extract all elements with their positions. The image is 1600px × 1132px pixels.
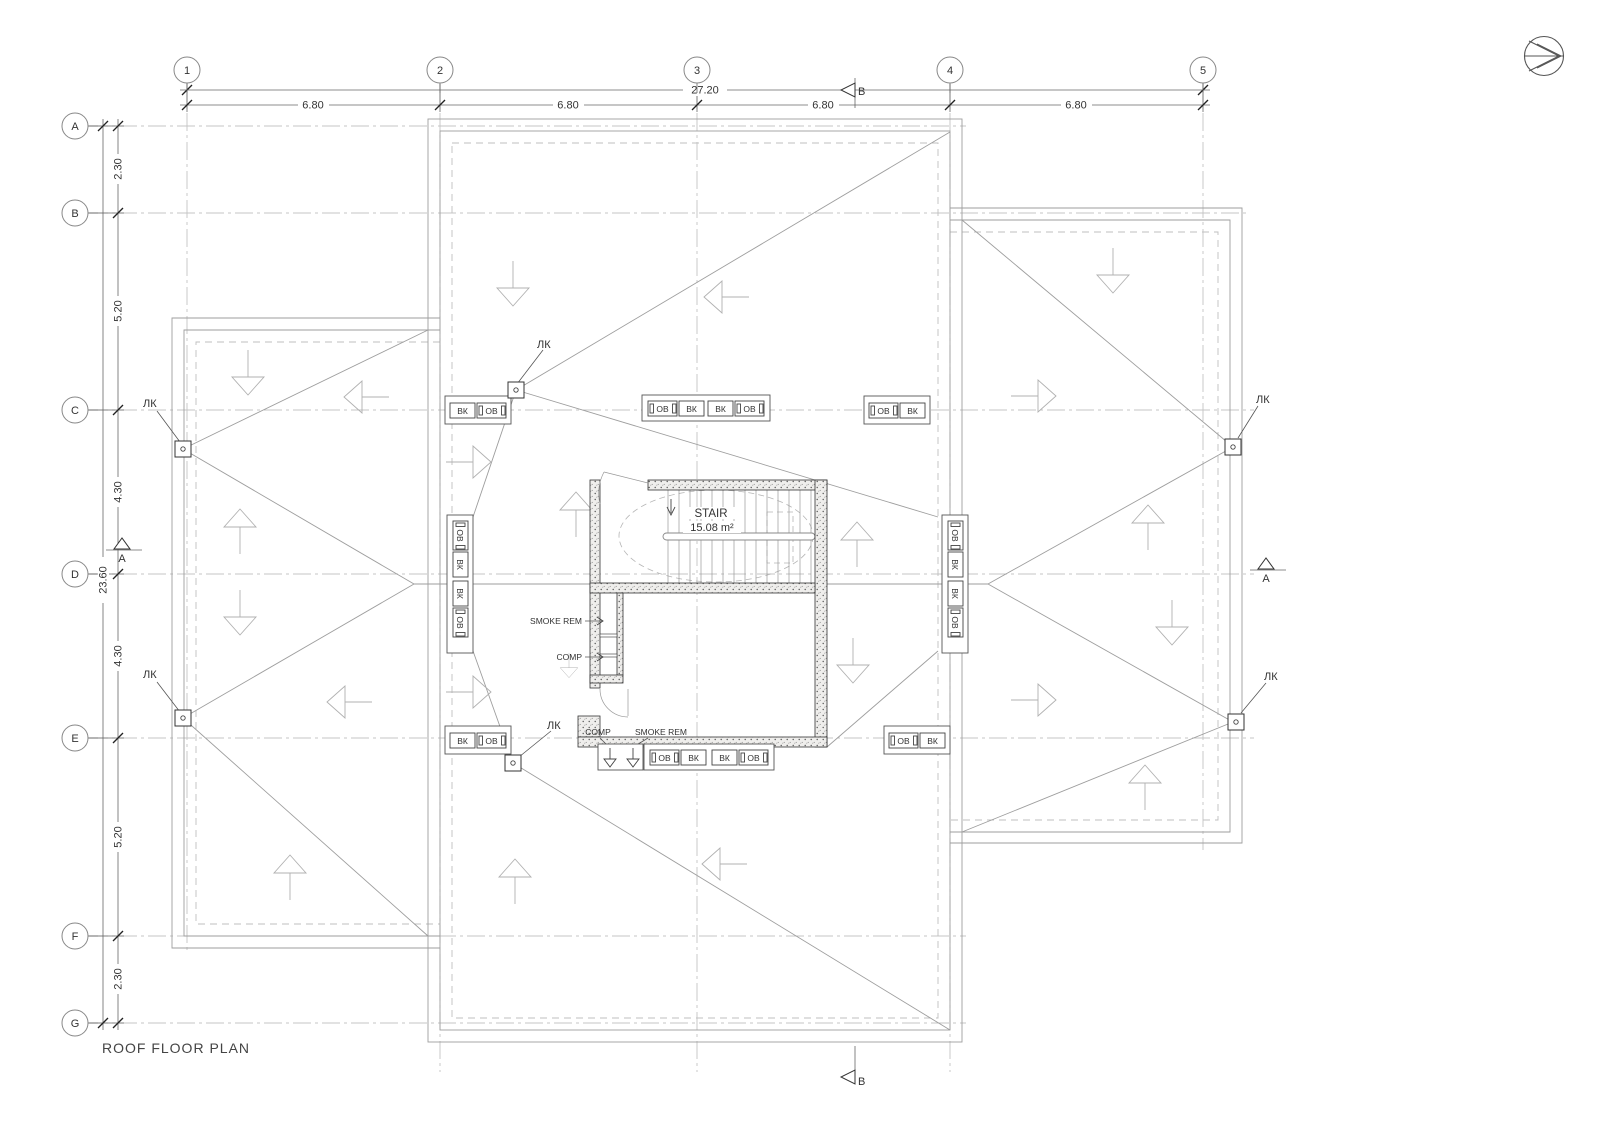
duct-outlet-box	[598, 744, 643, 770]
slope-arrow-right-icon	[446, 676, 491, 708]
vent-vk-label: ВК	[907, 406, 918, 416]
lk-leader	[157, 411, 180, 442]
grid-bubble-1: 1	[174, 57, 200, 93]
dim-segment-left: 4.30	[113, 645, 125, 666]
slope-arrow-up-icon	[560, 492, 592, 537]
grid-lines-rows	[90, 126, 1254, 1023]
slope-arrow-right-icon	[446, 446, 491, 478]
dim-segment-top: 6.80	[1065, 100, 1086, 112]
section-label: B	[858, 86, 865, 98]
lk-leader	[157, 682, 180, 712]
section-marker-a-right: A	[1250, 558, 1286, 585]
dim-segment-top: 6.80	[812, 100, 833, 112]
grid-bubble-label: F	[72, 931, 79, 943]
smoke-rem-label-bottom: SMOKE REM	[635, 727, 687, 737]
dim-total-top: 27.20	[691, 85, 719, 97]
stair-label: STAIR	[694, 508, 727, 520]
dimensions-left: 23.60 2.30 5.20 4.30 4.30 5.20 2.30	[86, 119, 125, 1030]
grid-bubble-label: E	[71, 733, 78, 745]
floor-plan-drawing: STAIR 15.08 m² SMOKE REM COMP COMP SMOKE…	[0, 0, 1600, 1132]
vent-vk-label: ВК	[688, 753, 699, 763]
slope-arrow-left-icon	[327, 686, 372, 718]
dim-segment-left-group: 4.30	[112, 641, 125, 671]
section-triangle-icon	[841, 1070, 855, 1084]
slope-arrow-right-icon	[1011, 684, 1056, 716]
lk-label: ЛК	[143, 398, 157, 410]
slope-arrow-down-icon	[232, 350, 264, 395]
dim-segment-left: 5.20	[113, 300, 125, 321]
dim-total-left: 23.60	[98, 566, 110, 594]
roof-floor-plan-sheet: STAIR 15.08 m² SMOKE REM COMP COMP SMOKE…	[0, 0, 1600, 1132]
left-wing-wall-line	[184, 330, 440, 936]
slope-arrow-up-icon	[841, 522, 873, 567]
section-triangle-icon	[1258, 558, 1274, 569]
door-leaf-top	[604, 472, 648, 483]
section-triangle-icon	[114, 538, 130, 549]
dim-segment-left: 4.30	[113, 481, 125, 502]
vent-vk-label: ВК	[719, 753, 730, 763]
slope-arrow-up-icon	[499, 859, 531, 904]
stair-wall-right	[815, 480, 827, 747]
dim-segment-top: 6.80	[302, 100, 323, 112]
vent-ov-label: ОВ	[950, 529, 960, 542]
lk-point	[175, 441, 191, 457]
stair-wall-mid	[590, 583, 815, 593]
grid-bubble-label: D	[71, 569, 79, 581]
grid-bubble-b: B	[62, 200, 98, 226]
dim-segment-left-group: 5.20	[112, 296, 125, 326]
slope-arrow-up-icon	[1129, 765, 1161, 810]
dim-segment-left-group: 5.20	[112, 822, 125, 852]
section-label: B	[858, 1076, 865, 1088]
vent-vk-label: ВК	[457, 406, 468, 416]
dimensions-top: 27.20 6.80 6.80 6.80 6.80	[180, 83, 1210, 112]
vent-ov-label: ОВ	[950, 616, 960, 629]
door-swing-arc-bottom	[600, 689, 628, 717]
grid-bubble-e: E	[62, 725, 98, 751]
dim-segment-left: 5.20	[113, 826, 125, 847]
dim-segment-left: 2.30	[113, 968, 125, 989]
dim-segment-left-group: 2.30	[112, 964, 125, 994]
slope-arrow-up-icon	[1132, 505, 1164, 550]
lk-point	[508, 382, 524, 398]
central-roof-hidden-line	[452, 143, 938, 1018]
grid-bubble-4: 4	[937, 57, 963, 93]
slope-arrow-left-icon	[704, 281, 749, 313]
vent-vk-label: ВК	[455, 559, 465, 570]
stair-wall-top	[648, 480, 827, 490]
vent-ov-label: ОВ	[485, 406, 498, 416]
grid-bubble-label: 5	[1200, 65, 1206, 77]
slope-arrow-right-icon	[1011, 380, 1056, 412]
grid-bubble-2: 2	[427, 57, 453, 93]
roof-hip-valley-lines	[183, 132, 1233, 1030]
grid-bubble-5: 5	[1190, 57, 1216, 93]
right-wing-outer-edge	[950, 208, 1242, 843]
vent-ov-label: ОВ	[455, 529, 465, 542]
lk-point	[505, 755, 521, 771]
left-wing-outer-edge	[172, 318, 440, 948]
lk-point	[1225, 439, 1241, 455]
slope-arrow-left-icon	[702, 848, 747, 880]
grid-bubble-label: B	[71, 208, 78, 220]
stair-handrail	[663, 533, 815, 540]
vent-vk-label: ВК	[715, 404, 726, 414]
lk-leader	[517, 350, 543, 384]
roof-slope-arrows	[224, 248, 1188, 904]
grid-bubble-label: C	[71, 405, 79, 417]
smoke-rem-label: SMOKE REM	[530, 616, 582, 626]
central-roof-outer-edge	[428, 119, 962, 1042]
grid-bubble-label: 1	[184, 65, 190, 77]
left-wing-hidden-line	[196, 342, 440, 924]
duct-partition	[617, 593, 623, 675]
drawing-title: ROOF FLOOR PLAN	[102, 1040, 250, 1056]
section-marker-a-left: A	[106, 538, 142, 565]
dim-segment-left-group: 2.30	[112, 154, 125, 184]
grid-bubble-d: D	[62, 561, 98, 587]
lk-label: ЛК	[1256, 394, 1270, 406]
grid-bubble-a: A	[62, 113, 98, 139]
lk-label: ЛК	[547, 720, 561, 732]
vent-vk-label: ВК	[455, 588, 465, 599]
duct-divider	[600, 634, 617, 637]
lk-leader	[1241, 683, 1266, 713]
vent-vk-label: ВК	[950, 588, 960, 599]
vent-ov-label: ОВ	[877, 406, 890, 416]
grid-bubble-label: A	[71, 121, 79, 133]
section-label: A	[118, 553, 126, 565]
grid-bubble-label: 3	[694, 65, 700, 77]
grid-bubble-f: F	[62, 923, 98, 949]
comp-label: COMP	[557, 652, 583, 662]
lk-label: ЛК	[537, 339, 551, 351]
lk-leader	[1238, 406, 1258, 438]
slope-arrow-left-icon	[344, 381, 389, 413]
vent-ov-label: ОВ	[747, 753, 760, 763]
roof-outlines	[172, 119, 1242, 1042]
grid-bubble-label: G	[71, 1018, 80, 1030]
right-wing-hidden-line	[950, 232, 1218, 820]
slope-arrow-down-icon	[1156, 600, 1188, 645]
grid-bubble-label: 4	[947, 65, 953, 77]
section-marker-b-bottom: B	[841, 1046, 865, 1088]
vent-vk-label: ВК	[927, 736, 938, 746]
grid-bubbles-left: A B C D E F G	[62, 113, 98, 1036]
dim-segment-left-group: 4.30	[112, 477, 125, 507]
slope-arrow-down-icon	[1097, 248, 1129, 293]
lk-point	[175, 710, 191, 726]
central-roof-wall-line	[440, 131, 950, 1030]
slope-arrow-down-icon	[224, 590, 256, 635]
dim-total-left-group: 23.60	[97, 557, 110, 603]
vent-ov-label: ОВ	[897, 736, 910, 746]
section-label: A	[1262, 573, 1270, 585]
stair-area-value: 15.08 m²	[690, 522, 734, 534]
section-triangle-icon	[841, 83, 855, 97]
section-marker-b-top: B	[841, 78, 865, 108]
dim-segment-top: 6.80	[557, 100, 578, 112]
grid-bubble-g: G	[62, 1010, 98, 1036]
stair-core: STAIR 15.08 m²	[578, 472, 827, 747]
slope-arrow-up-icon	[224, 509, 256, 554]
duct-partition-bottom	[590, 675, 623, 683]
grid-bubble-label: 2	[437, 65, 443, 77]
vent-ov-label: ОВ	[656, 404, 669, 414]
vent-ov-label: ОВ	[743, 404, 756, 414]
dim-segment-left: 2.30	[113, 158, 125, 179]
lk-leader	[519, 731, 551, 757]
slope-arrow-down-icon	[837, 638, 869, 683]
vent-ov-label: ОВ	[485, 736, 498, 746]
lk-label: ЛК	[143, 669, 157, 681]
lk-label: ЛК	[1264, 671, 1278, 683]
vent-ov-label: ОВ	[455, 616, 465, 629]
vent-vk-label: ВК	[686, 404, 697, 414]
comp-label-bottom: COMP	[585, 727, 611, 737]
vent-vk-label: ВК	[950, 559, 960, 570]
lk-point	[1228, 714, 1244, 730]
vent-vk-label: ВК	[457, 736, 468, 746]
grid-bubble-c: C	[62, 397, 98, 423]
north-arrow-icon	[1525, 37, 1564, 76]
slope-arrow-up-icon	[274, 855, 306, 900]
roof-vents: ВК ОВ ОВ ВК ВК ОВ ОВ ВК ВК ОВ	[445, 395, 968, 770]
vent-ov-label: ОВ	[658, 753, 671, 763]
slope-arrow-down-icon	[497, 261, 529, 306]
